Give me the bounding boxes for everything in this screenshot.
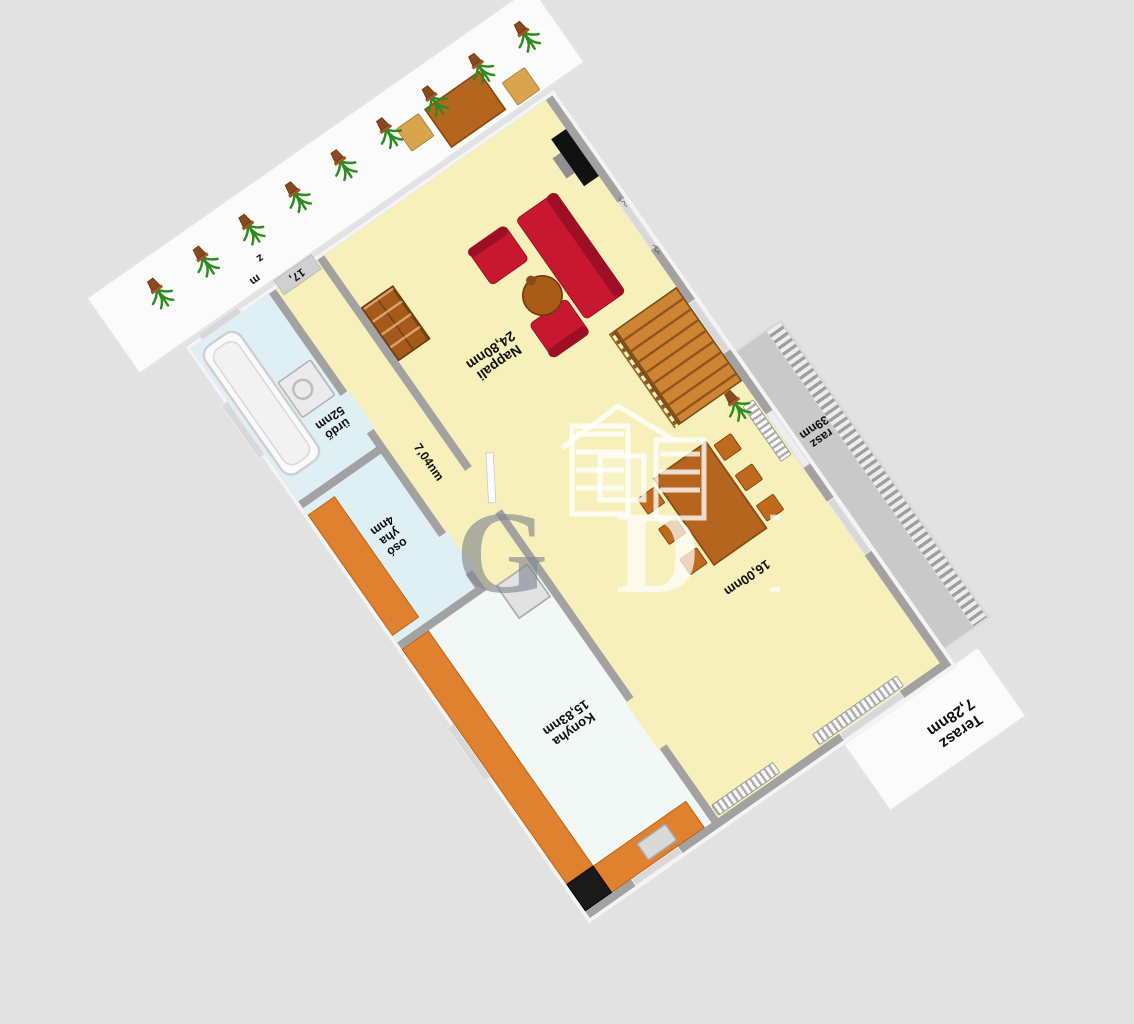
potted-plant-icon: [459, 47, 502, 91]
apartment-3d-plan: Terasz 7,28nm rasz 39nm m z: [58, 0, 1072, 1024]
entry-stray-fragment: m: [245, 270, 266, 290]
potted-plant-icon: [276, 175, 319, 219]
stray-m: m: [245, 270, 266, 290]
potted-plant-icon: [367, 111, 410, 155]
potted-plant-icon: [505, 14, 548, 58]
potted-plant-icon: [230, 207, 273, 251]
floorplan-scene: Terasz 7,28nm rasz 39nm m z: [0, 0, 1134, 1024]
potted-plant-icon: [322, 143, 365, 187]
potted-plant-icon: [138, 271, 181, 315]
outdoor-chair: [502, 67, 541, 106]
entry-stray-fragment: z: [250, 249, 271, 269]
stray-z: z: [250, 249, 271, 269]
potted-plant-icon: [184, 239, 227, 283]
